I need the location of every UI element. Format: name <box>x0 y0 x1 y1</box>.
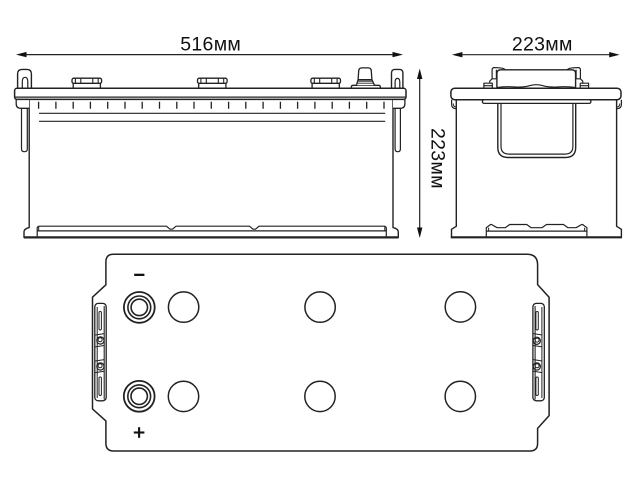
svg-text:223мм: 223мм <box>512 34 573 56</box>
svg-text:516мм: 516мм <box>180 34 241 56</box>
svg-text:223мм: 223мм <box>427 128 449 189</box>
